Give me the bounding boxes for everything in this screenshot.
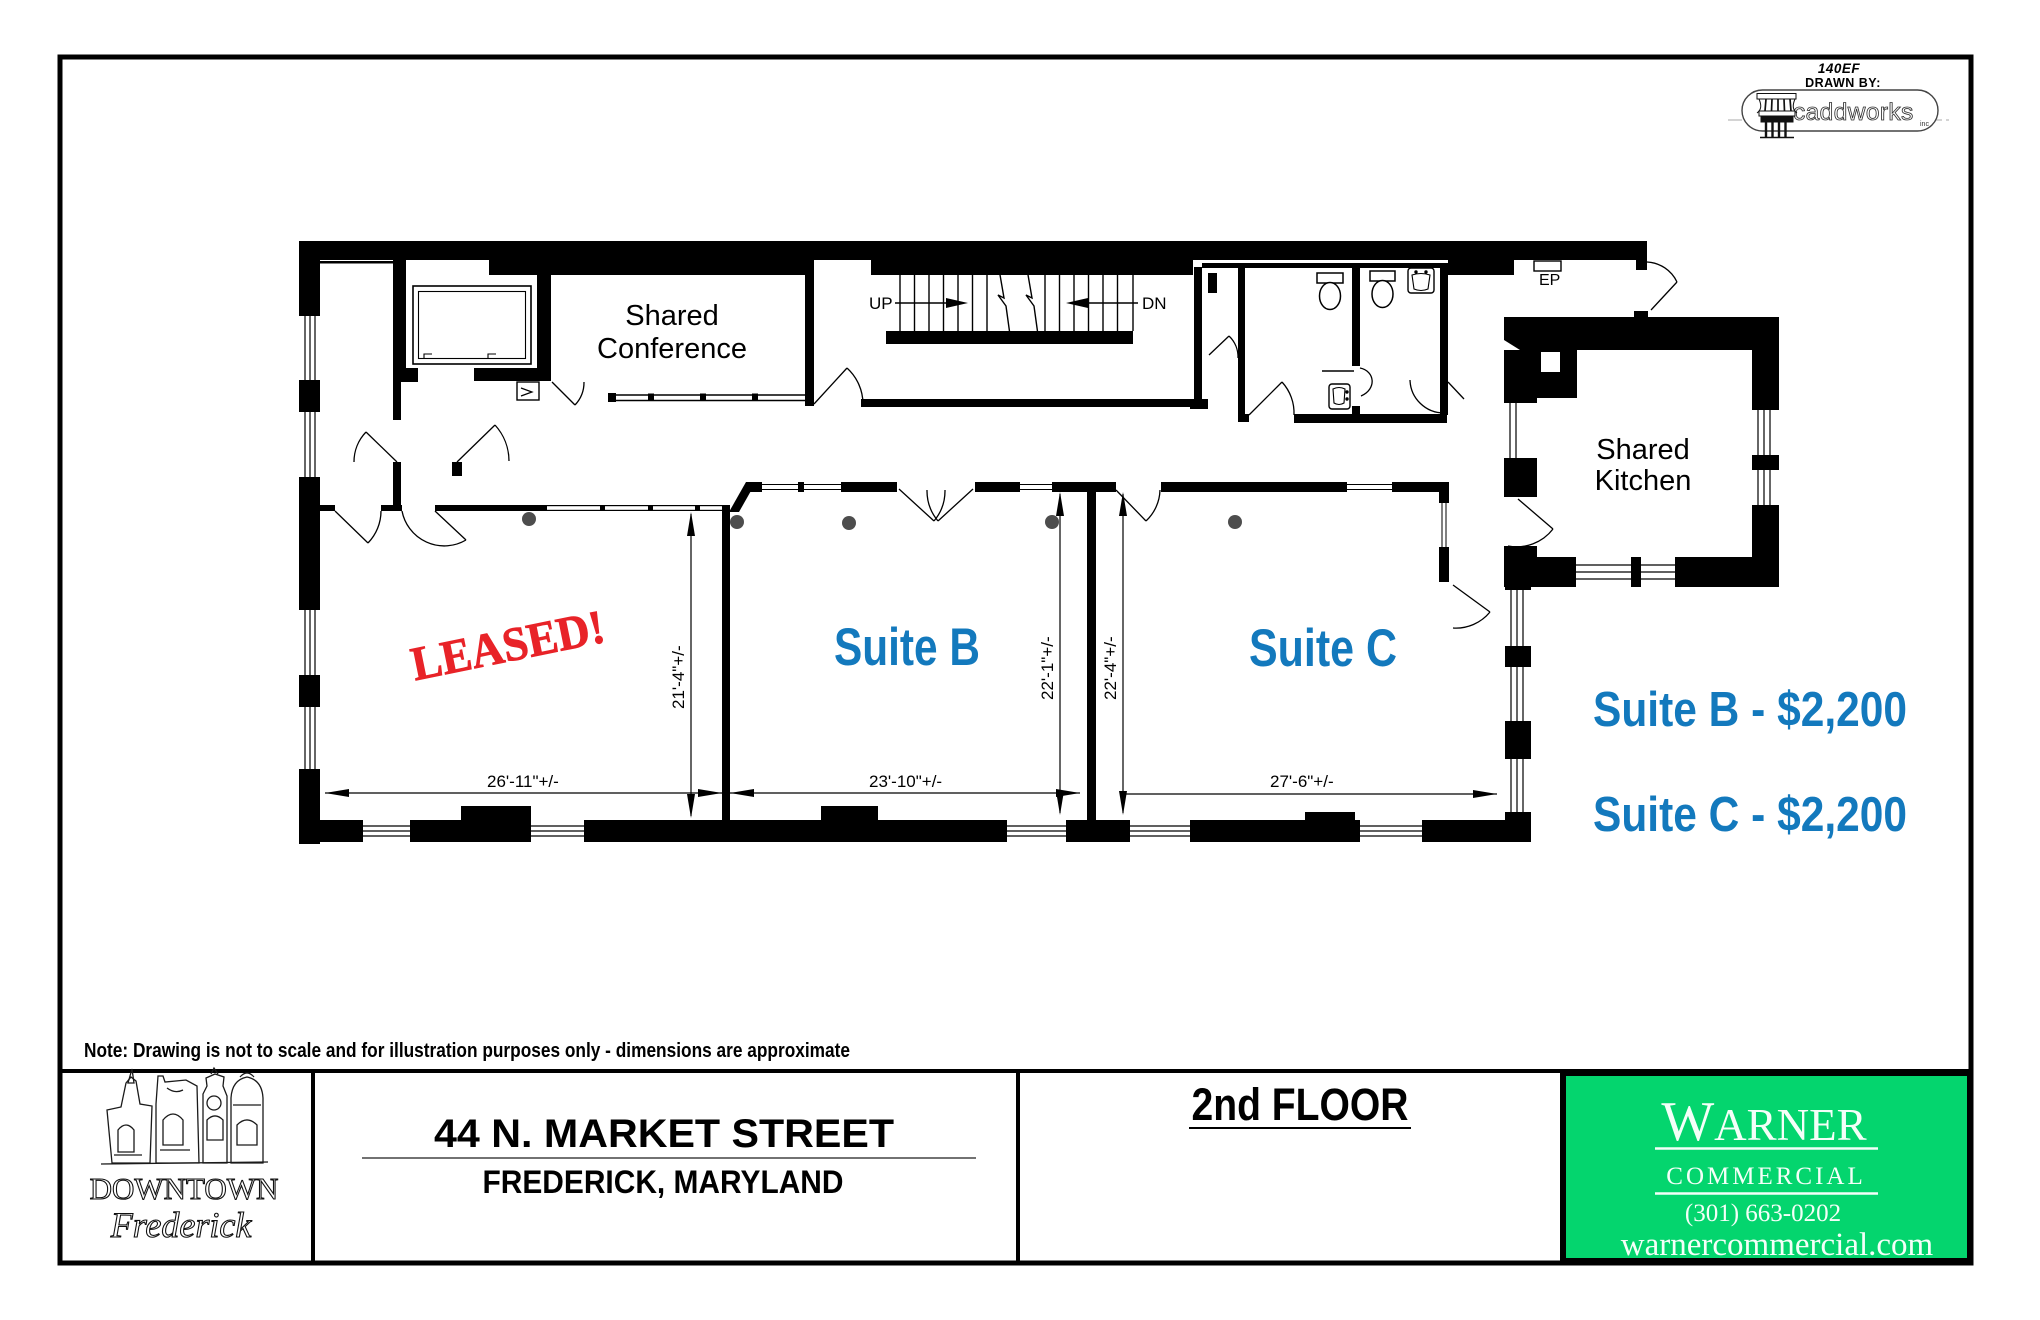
svg-text:Shared: Shared [625, 300, 719, 332]
svg-text:DN: DN [1142, 294, 1167, 313]
svg-text:Kitchen: Kitchen [1595, 465, 1692, 497]
svg-text:DOWNTOWN: DOWNTOWN [90, 1171, 279, 1206]
svg-text:Frederick: Frederick [110, 1205, 253, 1245]
svg-text:inc: inc [1920, 121, 1929, 128]
svg-text:WARNER: WARNER [1661, 1091, 1866, 1153]
svg-text:44 N. MARKET STREET: 44 N. MARKET STREET [434, 1112, 894, 1156]
svg-text:23'-10"+/-: 23'-10"+/- [869, 772, 942, 791]
svg-text:DRAWN BY:: DRAWN BY: [1805, 76, 1881, 90]
svg-text:26'-11"+/-: 26'-11"+/- [487, 772, 559, 791]
svg-text:Note: Drawing is not to scale: Note: Drawing is not to scale and for il… [84, 1040, 850, 1062]
svg-text:Shared: Shared [1596, 434, 1690, 466]
svg-text:27'-6"+/-: 27'-6"+/- [1270, 772, 1334, 791]
svg-text:22'-4"+/-: 22'-4"+/- [1101, 636, 1120, 700]
svg-text:2nd FLOOR: 2nd FLOOR [1192, 1079, 1409, 1130]
svg-text:Suite C: Suite C [1249, 619, 1397, 678]
svg-text:Suite B: Suite B [834, 618, 980, 677]
svg-text:FREDERICK, MARYLAND: FREDERICK, MARYLAND [483, 1164, 844, 1200]
svg-text:UP: UP [869, 294, 893, 313]
svg-text:Suite C - $2,200: Suite C - $2,200 [1593, 788, 1907, 842]
svg-text:warnercommercial.com: warnercommercial.com [1621, 1227, 1934, 1263]
svg-text:Conference: Conference [597, 333, 747, 365]
svg-text:140EF: 140EF [1818, 61, 1861, 76]
svg-text:EP: EP [1539, 272, 1560, 289]
svg-text:22'-1"+/-: 22'-1"+/- [1038, 636, 1057, 700]
svg-text:Suite B - $2,200: Suite B - $2,200 [1593, 683, 1907, 737]
svg-text:21'-4"+/-: 21'-4"+/- [669, 645, 688, 709]
svg-text:caddworks: caddworks [1793, 99, 1914, 126]
svg-text:COMMERCIAL: COMMERCIAL [1666, 1163, 1865, 1190]
svg-text:(301) 663-0202: (301) 663-0202 [1685, 1200, 1841, 1227]
